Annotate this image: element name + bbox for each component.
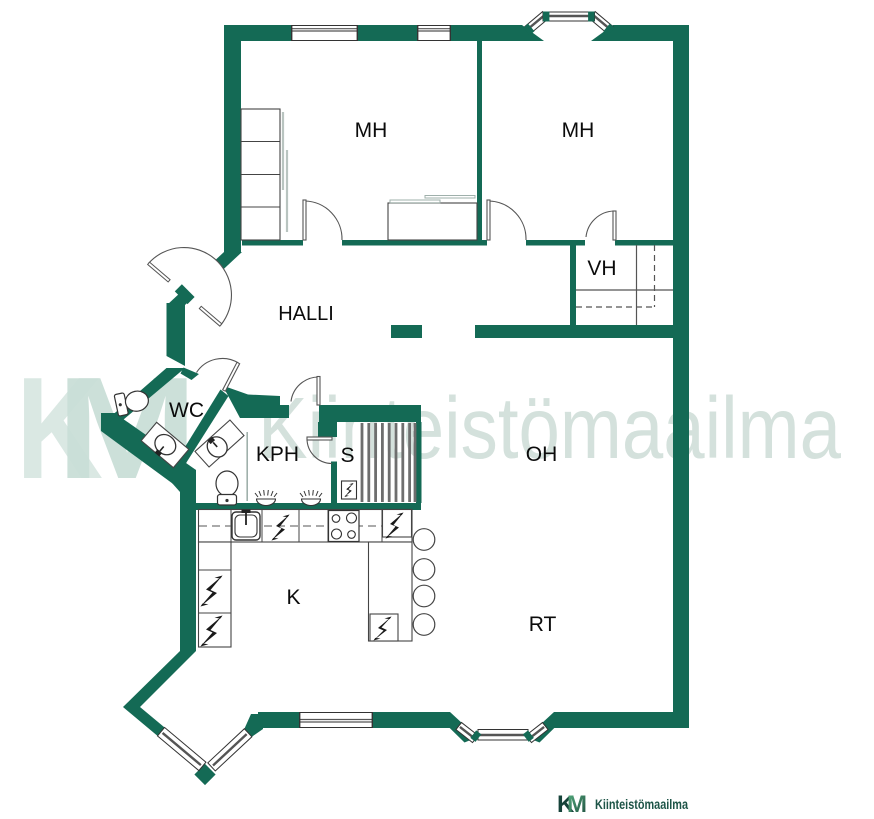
svg-text:KPH: KPH: [256, 443, 299, 466]
svg-text:MH: MH: [355, 119, 388, 142]
svg-text:RT: RT: [529, 613, 557, 636]
svg-text:VH: VH: [587, 257, 616, 280]
svg-text:MH: MH: [562, 119, 595, 142]
svg-text:S: S: [340, 444, 354, 467]
svg-text:Kiinteistömaailma: Kiinteistömaailma: [595, 796, 688, 812]
svg-text:K: K: [286, 586, 300, 609]
svg-text:M: M: [567, 791, 587, 818]
svg-text:WC: WC: [169, 399, 204, 422]
svg-text:HALLI: HALLI: [278, 303, 334, 325]
svg-text:OH: OH: [526, 443, 558, 466]
